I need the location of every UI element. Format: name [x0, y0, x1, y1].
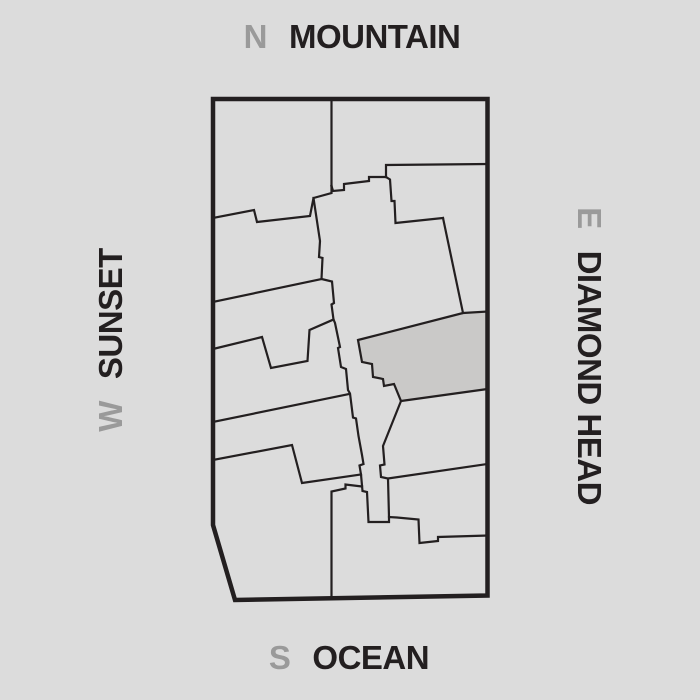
compass-west: W SUNSET [92, 248, 130, 432]
divider-southeast-diagonal [388, 464, 488, 479]
divider-east-horizontal [386, 164, 488, 177]
compass-north: N MOUNTAIN [244, 18, 461, 56]
divider-east-diagonal [443, 218, 463, 313]
west-label: SUNSET [92, 248, 130, 379]
divider-west-2 [213, 279, 322, 302]
north-label: MOUNTAIN [289, 18, 460, 56]
west-letter: W [92, 401, 130, 432]
divider-west-3-notch [213, 320, 334, 369]
highlighted-unit[interactable] [358, 312, 488, 402]
divider-center-ne-zigzag [386, 177, 443, 223]
north-letter: N [244, 18, 267, 56]
floor-plate-map: N MOUNTAIN S OCEAN W SUNSET E DIAMOND HE… [0, 0, 700, 700]
compass-south: S OCEAN [269, 639, 429, 677]
south-label: OCEAN [312, 639, 429, 677]
divider-core-north-steps [332, 177, 387, 191]
divider-west-4 [213, 394, 349, 422]
south-letter: S [269, 639, 291, 677]
compass-east: E DIAMOND HEAD [570, 207, 608, 505]
divider-west-5 [213, 445, 361, 483]
east-label: DIAMOND HEAD [570, 251, 608, 505]
divider-core-east-lower [380, 401, 401, 517]
divider-bottom-vertical [332, 485, 363, 598]
east-letter: E [570, 207, 608, 229]
divider-west-1 [213, 198, 314, 222]
